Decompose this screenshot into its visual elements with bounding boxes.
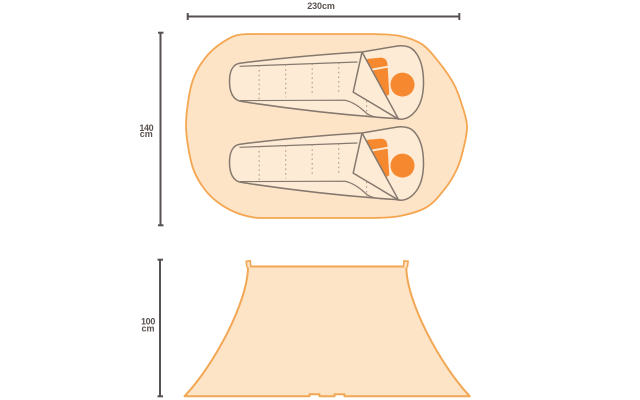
svg-text:cm: cm <box>141 324 154 334</box>
svg-text:230cm: 230cm <box>307 1 335 11</box>
svg-text:cm: cm <box>140 129 153 139</box>
